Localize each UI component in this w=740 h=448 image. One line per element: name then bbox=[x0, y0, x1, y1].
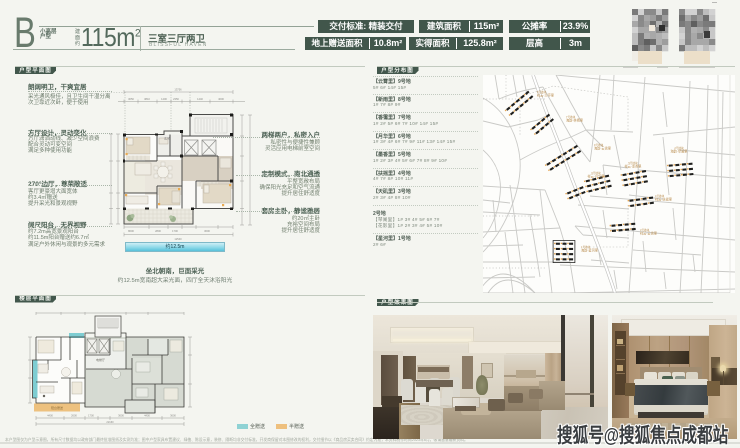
svg-text:12540: 12540 bbox=[174, 237, 182, 241]
svg-text:1700: 1700 bbox=[88, 414, 94, 418]
svg-text:祥云·月华里: 祥云·月华里 bbox=[588, 174, 606, 179]
svg-text:2350: 2350 bbox=[173, 97, 179, 101]
svg-text:8600: 8600 bbox=[128, 229, 134, 233]
svg-text:4400: 4400 bbox=[144, 414, 150, 418]
svg-text:海韵·林栖里: 海韵·林栖里 bbox=[566, 118, 584, 123]
svg-text:3600: 3600 bbox=[170, 414, 176, 418]
svg-text:3810: 3810 bbox=[144, 97, 150, 101]
svg-text:1400: 1400 bbox=[161, 97, 167, 101]
svg-text:祥云·兰亭里: 祥云·兰亭里 bbox=[537, 93, 555, 98]
svg-text:3600: 3600 bbox=[204, 229, 210, 233]
svg-text:4400: 4400 bbox=[47, 414, 53, 418]
svg-text:电梯厅: 电梯厅 bbox=[96, 357, 105, 362]
svg-text:13756: 13756 bbox=[174, 88, 182, 92]
svg-text:祥云·墨香里: 祥云·墨香里 bbox=[625, 164, 643, 169]
svg-text:2600: 2600 bbox=[71, 414, 77, 418]
svg-text:1700: 1700 bbox=[172, 229, 178, 233]
svg-text:海韵·星河里: 海韵·星河里 bbox=[581, 248, 599, 253]
svg-text:4600: 4600 bbox=[218, 97, 224, 101]
svg-text:22160: 22160 bbox=[106, 420, 114, 424]
svg-text:海韵·琴阑里: 海韵·琴阑里 bbox=[671, 149, 689, 154]
svg-text:祥云·云霄里: 祥云·云霄里 bbox=[640, 231, 658, 236]
svg-text:玄关: 玄关 bbox=[164, 136, 170, 141]
svg-text:3600: 3600 bbox=[118, 414, 124, 418]
svg-text:3050: 3050 bbox=[128, 97, 134, 101]
svg-text:海韵·云霄里: 海韵·云霄里 bbox=[594, 146, 612, 151]
svg-text:1440: 1440 bbox=[197, 97, 203, 101]
svg-text:阳台赠送: 阳台赠送 bbox=[51, 405, 63, 410]
svg-text:祥云·扶摇里: 祥云·扶摇里 bbox=[655, 197, 673, 202]
svg-text:2800: 2800 bbox=[155, 229, 161, 233]
